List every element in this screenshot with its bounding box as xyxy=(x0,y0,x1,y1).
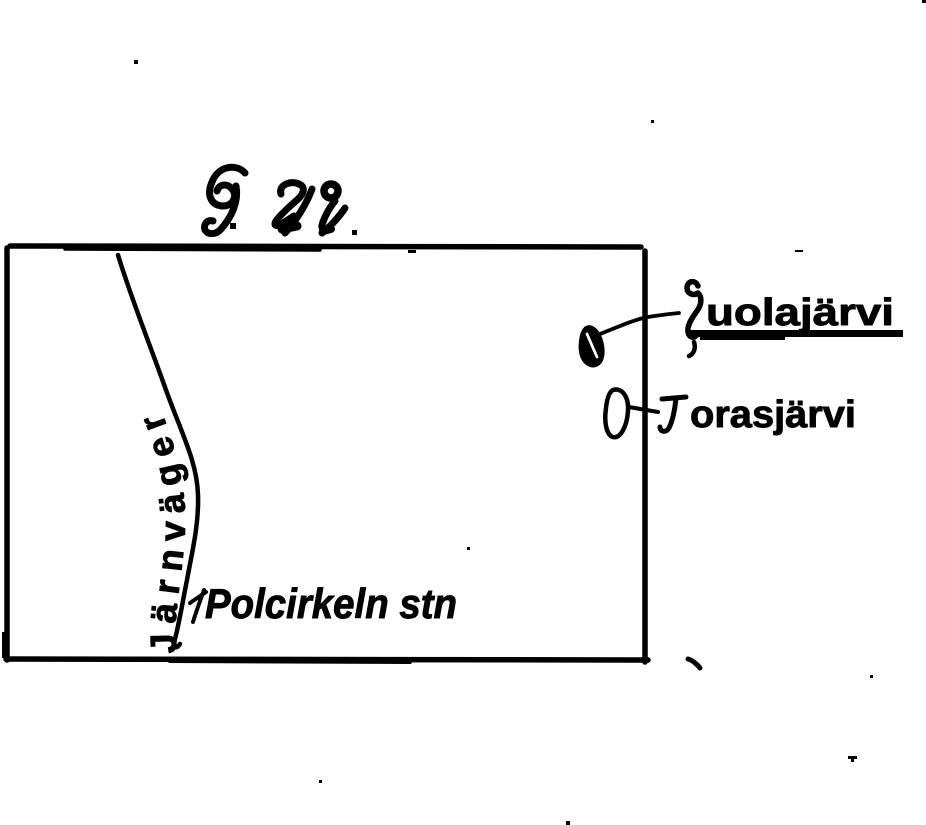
svg-text:Polcirkeln stn: Polcirkeln stn xyxy=(205,580,457,627)
svg-text:orasjärvi: orasjärvi xyxy=(690,394,856,436)
svg-text:uolajärvi: uolajärvi xyxy=(706,292,894,334)
